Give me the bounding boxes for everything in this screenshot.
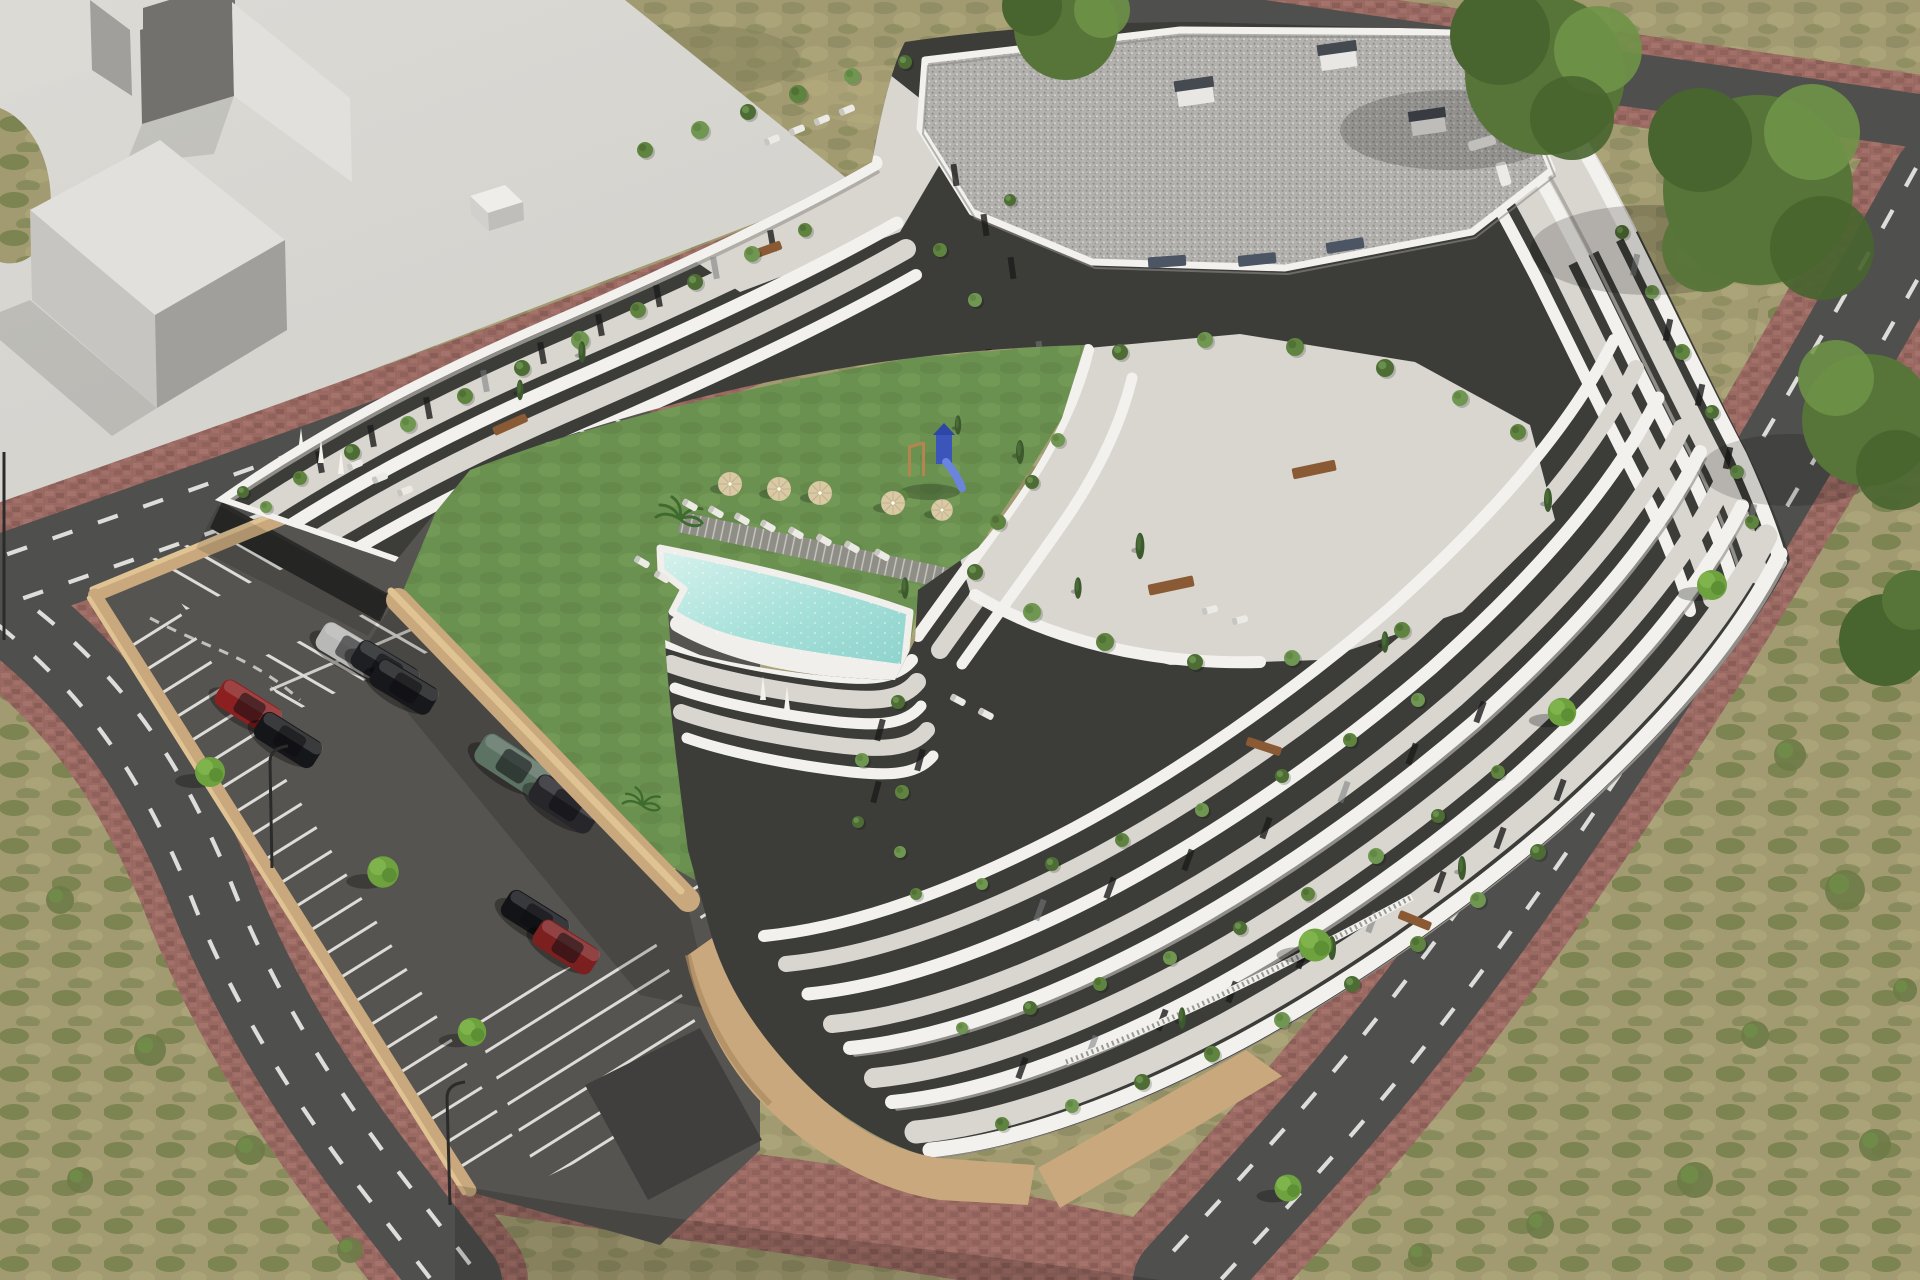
plant-highlight <box>1454 392 1461 399</box>
plant-highlight <box>1286 652 1293 659</box>
plant-highlight <box>900 57 906 63</box>
plant-highlight <box>1472 894 1479 901</box>
bush-highlight <box>1744 1024 1758 1038</box>
plant-highlight <box>1067 1101 1073 1107</box>
bush-highlight <box>1862 1132 1878 1148</box>
bush-highlight <box>238 1138 253 1153</box>
plant-highlight <box>239 488 244 493</box>
plant-highlight <box>1396 624 1403 631</box>
plant-highlight <box>1047 859 1053 865</box>
plant-highlight <box>1707 407 1713 413</box>
bush-highlight <box>70 1170 83 1183</box>
plant-highlight <box>935 245 941 251</box>
plant-highlight <box>1025 1003 1031 1009</box>
plant-highlight <box>1199 334 1206 341</box>
aerial-render-svg: Aerial 3D rendering of a modern white te… <box>0 0 1920 1280</box>
plant-highlight <box>791 87 799 95</box>
plant-highlight <box>346 446 353 453</box>
chimney <box>1174 76 1217 107</box>
plant-highlight <box>912 890 917 895</box>
plant-highlight <box>262 503 267 508</box>
plant-highlight <box>742 106 749 113</box>
plant-highlight <box>897 787 903 793</box>
plant-highlight <box>1006 196 1011 201</box>
plant-highlight <box>1512 426 1519 433</box>
plant-highlight <box>1370 850 1377 857</box>
plant-highlight <box>1117 835 1123 841</box>
bush-highlight <box>1829 874 1849 894</box>
plant-highlight <box>1098 635 1106 643</box>
plant-highlight <box>1053 435 1059 441</box>
plant-highlight <box>1433 811 1439 817</box>
plant-highlight <box>1303 889 1309 895</box>
bush-highlight <box>49 889 63 903</box>
plant-highlight <box>846 70 853 77</box>
plant-highlight <box>1532 846 1539 853</box>
plant-highlight <box>1413 695 1419 701</box>
plant-highlight <box>978 880 983 885</box>
bush-highlight <box>137 1037 153 1053</box>
plant-highlight <box>857 755 863 761</box>
plant-highlight <box>1235 923 1241 929</box>
plant-highlight <box>639 144 646 151</box>
bush-highlight <box>1529 1214 1543 1228</box>
plant-highlight <box>1288 340 1296 348</box>
plant-highlight <box>1025 605 1033 613</box>
plant-highlight <box>1189 656 1196 663</box>
plant-highlight <box>992 516 999 523</box>
plant-highlight <box>1493 767 1499 773</box>
plant-highlight <box>1747 517 1753 523</box>
bush-highlight <box>340 1240 353 1253</box>
plant-highlight <box>1276 1014 1283 1021</box>
plant-highlight <box>1165 953 1171 959</box>
plant-highlight <box>1136 1076 1143 1083</box>
plant-highlight <box>854 818 859 823</box>
plant-highlight <box>896 848 901 853</box>
plant-highlight <box>958 1023 963 1028</box>
bush-highlight <box>1681 1166 1699 1184</box>
plant-highlight <box>746 248 753 255</box>
plant-highlight <box>459 390 466 397</box>
plant-highlight <box>1027 477 1033 483</box>
plant-highlight <box>402 418 409 425</box>
plant-highlight <box>1378 361 1386 369</box>
plant-highlight <box>893 697 899 703</box>
plant-highlight <box>970 295 976 301</box>
plant-highlight <box>1277 771 1283 777</box>
plant-highlight <box>1345 735 1351 741</box>
chimney <box>1317 40 1360 71</box>
plant-highlight <box>997 1119 1003 1125</box>
plant-highlight <box>516 362 523 369</box>
plant-highlight <box>800 225 806 231</box>
plant-highlight <box>693 123 701 131</box>
plant-highlight <box>1114 346 1121 353</box>
bush-highlight <box>1410 1245 1422 1257</box>
render-stage: Aerial 3D rendering of a modern white te… <box>0 0 1920 1280</box>
plant-highlight <box>969 566 976 573</box>
bush-highlight <box>1895 980 1907 992</box>
plant-highlight <box>689 276 696 283</box>
plant-highlight <box>1676 346 1683 353</box>
plant-highlight <box>1197 805 1203 811</box>
bush-highlight <box>1777 742 1793 758</box>
plant-highlight <box>1346 978 1353 985</box>
plant-highlight <box>1206 1048 1213 1055</box>
plant-highlight <box>1412 938 1419 945</box>
plant-highlight <box>573 333 581 341</box>
plant-highlight <box>632 304 639 311</box>
plant-highlight <box>1095 979 1101 985</box>
plant-highlight <box>295 473 301 479</box>
